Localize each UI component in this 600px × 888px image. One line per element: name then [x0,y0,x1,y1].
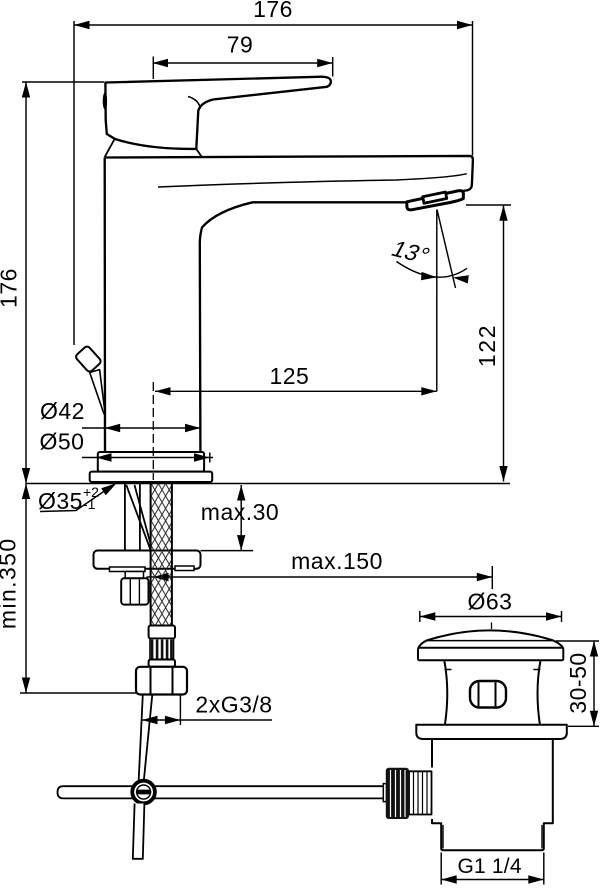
svg-text:min.350: min.350 [0,537,21,629]
svg-text:30-50: 30-50 [565,652,591,713]
svg-text:79: 79 [227,32,254,58]
svg-text:176: 176 [0,268,22,308]
svg-text:Ø63: Ø63 [468,589,513,615]
svg-text:Ø50: Ø50 [40,429,85,455]
svg-text:G1 1/4: G1 1/4 [457,855,521,878]
svg-text:max.30: max.30 [201,499,279,525]
svg-text:Ø42: Ø42 [40,398,85,424]
svg-text:-1: -1 [83,496,96,512]
svg-text:125: 125 [269,363,309,389]
svg-text:Ø35: Ø35 [38,488,83,514]
svg-text:2xG3/8: 2xG3/8 [195,692,272,718]
svg-text:122: 122 [474,324,500,367]
svg-text:max.150: max.150 [291,548,383,574]
svg-text:176: 176 [253,0,293,22]
